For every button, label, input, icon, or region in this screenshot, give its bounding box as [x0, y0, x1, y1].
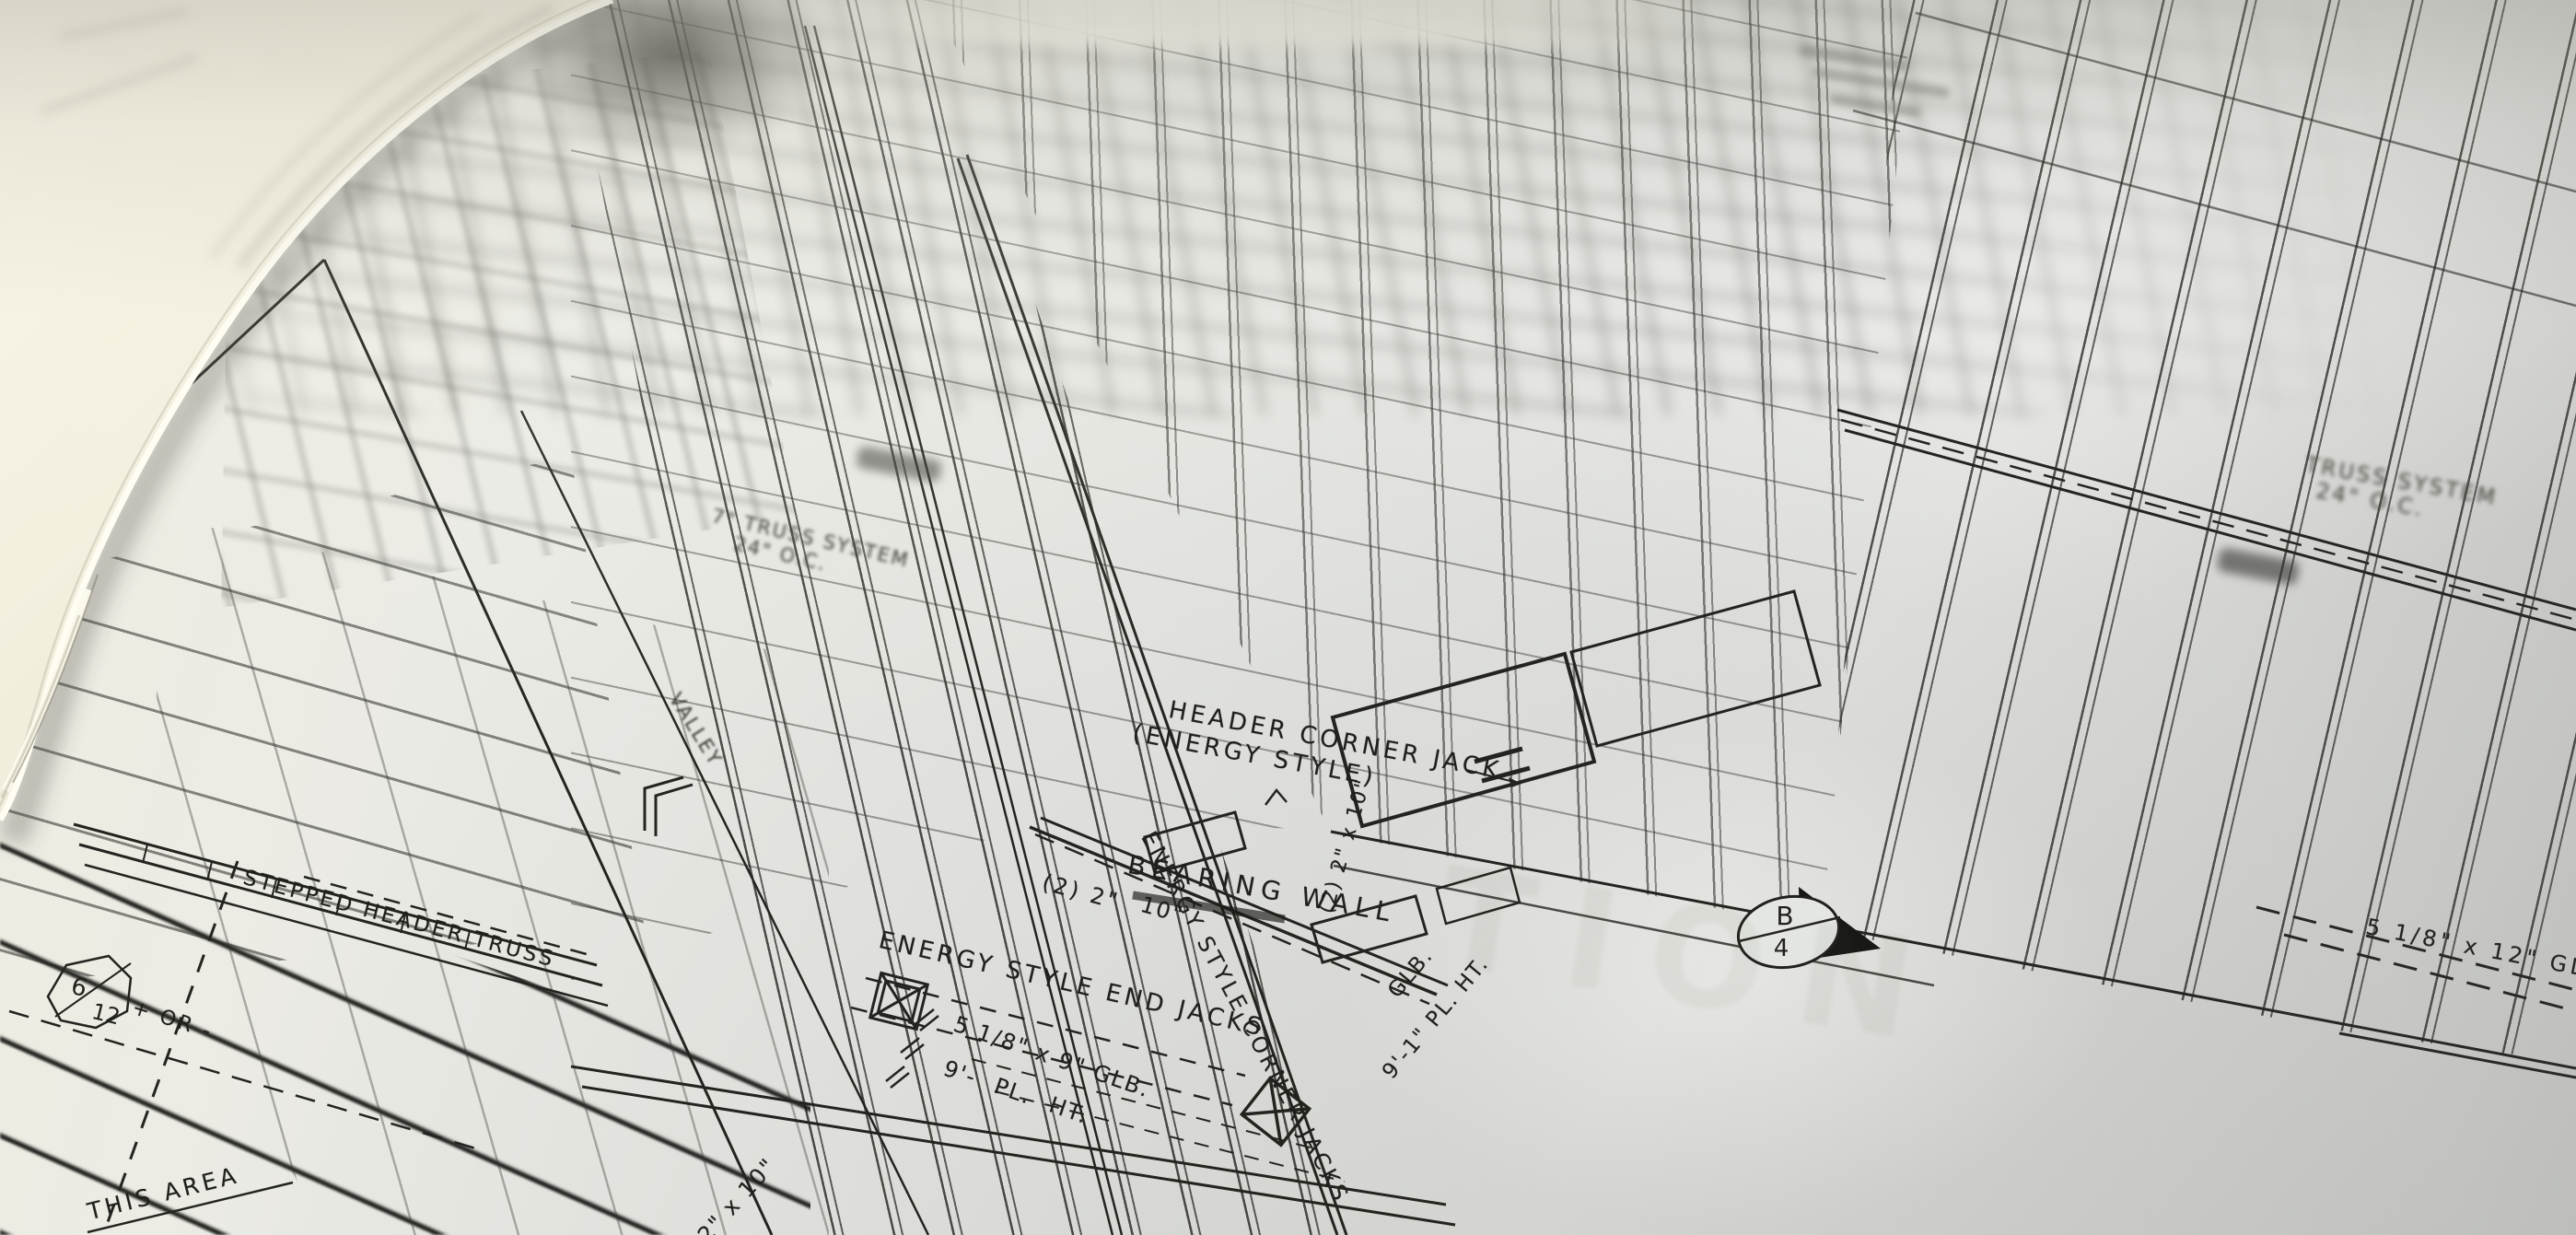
curl-surface	[0, 0, 612, 820]
page-curl	[0, 0, 2576, 1235]
blueprint-photo: 6 12 B 4	[0, 0, 2576, 1235]
